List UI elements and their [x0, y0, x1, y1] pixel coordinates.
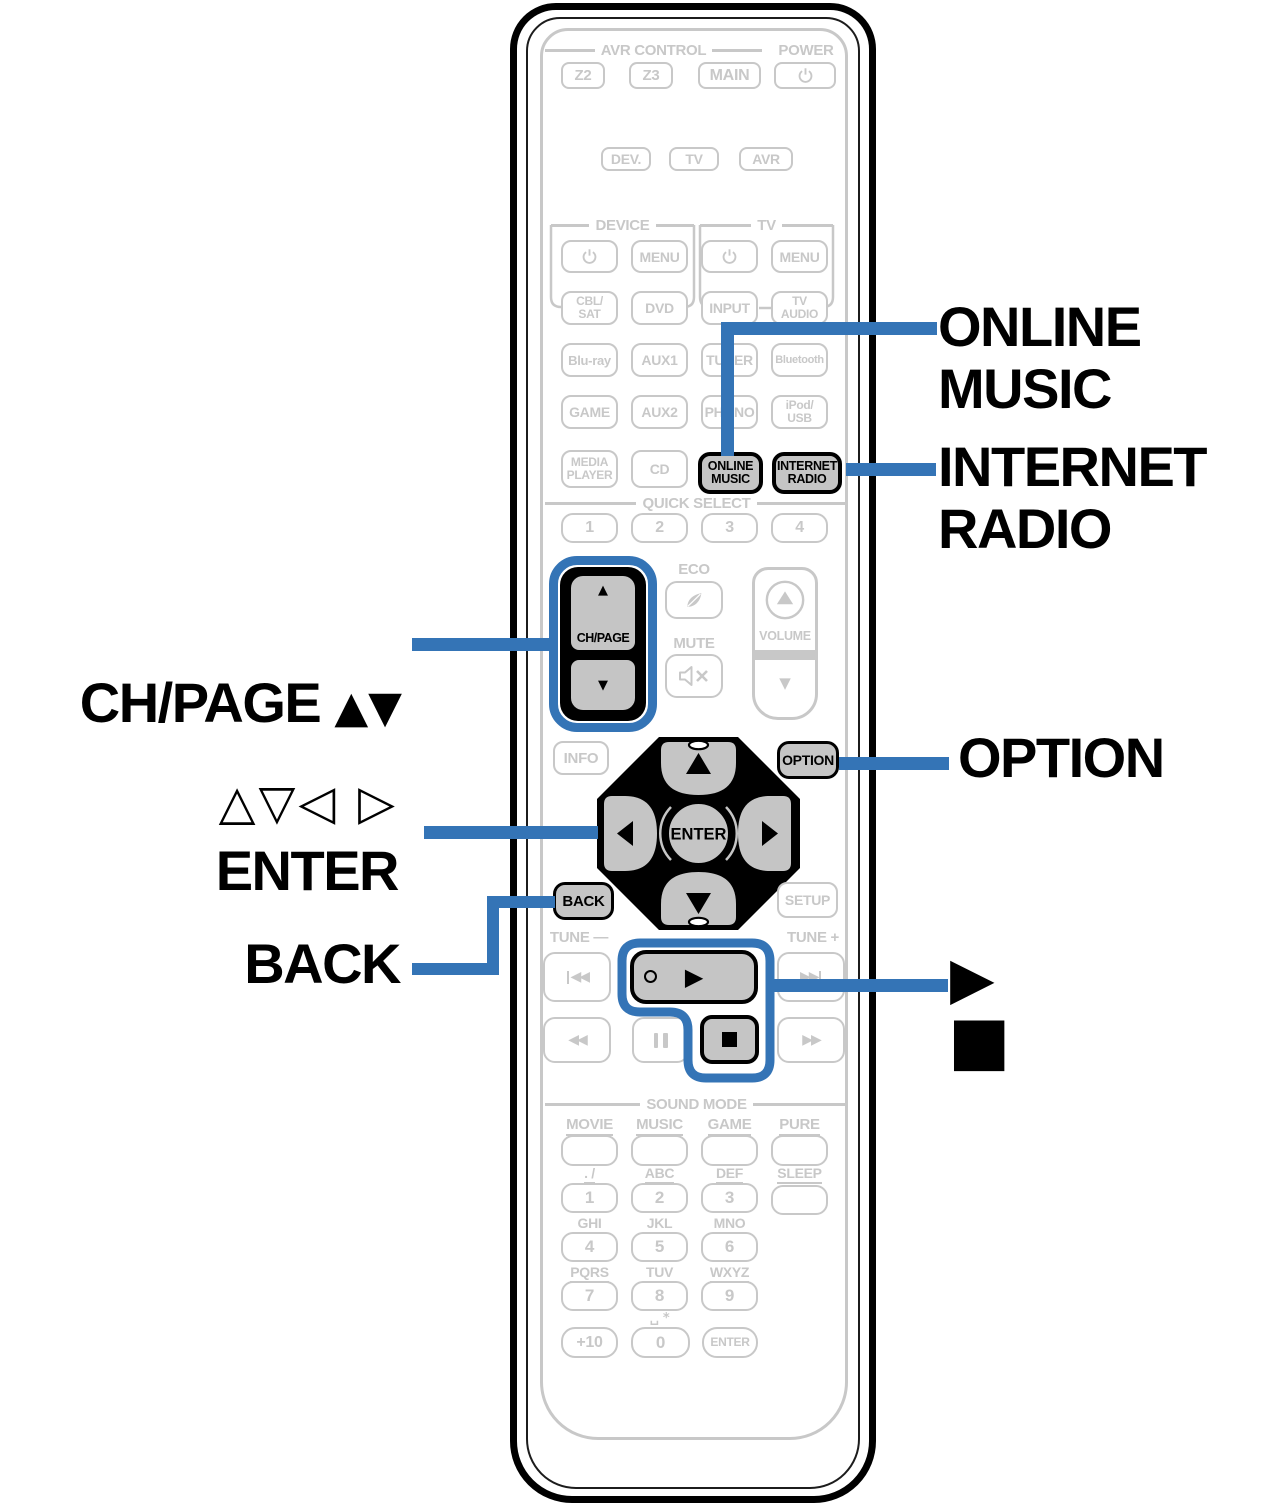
- rewind-button[interactable]: ◀◀: [543, 1017, 611, 1063]
- callout-line-internet-radio: [846, 463, 936, 476]
- callout-line-option: [839, 757, 949, 770]
- pad-bump-top: [689, 741, 708, 749]
- mno-label: MNO: [701, 1215, 758, 1231]
- volume-down-button[interactable]: ▼: [755, 674, 815, 692]
- online-music-button[interactable]: ONLINE MUSIC: [698, 452, 763, 494]
- callout-line-play-stop: [768, 979, 948, 992]
- power-header: POWER: [774, 42, 838, 59]
- dot-slash-label: . /: [561, 1165, 618, 1181]
- cursor-pad: ENTER: [595, 733, 805, 933]
- volume-label: VOLUME: [755, 629, 815, 643]
- mute-speaker-icon: [678, 665, 710, 687]
- ghi-label: GHI: [561, 1215, 618, 1231]
- media-player-button[interactable]: MEDIA PLAYER: [561, 450, 618, 488]
- skip-back-button[interactable]: ◀◀: [543, 952, 611, 1002]
- wxyz-label: WXYZ: [701, 1264, 758, 1280]
- avr-control-header: AVR CONTROL: [545, 42, 762, 59]
- music-sound-button[interactable]: [631, 1135, 688, 1166]
- enter-callout: ENTER: [0, 840, 398, 902]
- game-input-button[interactable]: GAME: [561, 395, 618, 429]
- sleep-label: SLEEP: [771, 1165, 828, 1181]
- ipod-usb-button[interactable]: iPod/ USB: [771, 395, 828, 429]
- main-zone-button[interactable]: MAIN: [698, 62, 761, 89]
- skip-bar: [567, 971, 570, 984]
- zone3-button[interactable]: Z3: [629, 62, 673, 89]
- eco-label: ECO: [663, 561, 725, 578]
- sound-mode-header: SOUND MODE: [545, 1096, 848, 1113]
- bluetooth-button[interactable]: Bluetooth: [771, 343, 828, 377]
- movie-sound-button[interactable]: [561, 1135, 618, 1166]
- power-icon: [581, 248, 598, 265]
- tv-audio-button[interactable]: TV AUDIO: [771, 291, 828, 325]
- number-enter-button[interactable]: ENTER: [702, 1327, 758, 1358]
- internet-radio-button[interactable]: INTERNET RADIO: [772, 452, 842, 494]
- def-label: DEF: [701, 1165, 758, 1181]
- dev-mode-button[interactable]: DEV.: [601, 147, 651, 171]
- eco-button[interactable]: [665, 581, 723, 619]
- tv-power-button[interactable]: [701, 240, 758, 273]
- leaf-icon: [682, 589, 706, 611]
- cursor-arrows-callout: △▽◁ ▷: [0, 772, 398, 834]
- cbl-sat-button[interactable]: CBL/ SAT: [561, 291, 618, 325]
- power-icon: [797, 67, 814, 84]
- input-button[interactable]: INPUT: [701, 291, 758, 325]
- digit-5-button[interactable]: 5: [631, 1232, 688, 1262]
- space-asterisk-label: ␣ *: [631, 1311, 688, 1326]
- setup-button[interactable]: SETUP: [777, 882, 838, 918]
- tv-menu-button[interactable]: MENU: [771, 240, 828, 273]
- pqrs-label: PQRS: [561, 1264, 618, 1280]
- skip-forward-button[interactable]: ▶▶: [777, 952, 845, 1002]
- cd-button[interactable]: CD: [631, 450, 688, 488]
- online-music-callout: ONLINE MUSIC: [938, 296, 1141, 420]
- up-arrow-icon: ▲: [598, 583, 608, 598]
- callout-line-online-music: [721, 322, 937, 335]
- mute-label: MUTE: [663, 635, 725, 652]
- fast-forward-button[interactable]: ▶▶: [777, 1017, 845, 1063]
- aux2-button[interactable]: AUX2: [631, 395, 688, 429]
- back-callout: BACK: [0, 933, 400, 995]
- aux1-button[interactable]: AUX1: [631, 343, 688, 377]
- callout-line-chpage: [412, 638, 552, 651]
- jkl-label: JKL: [631, 1215, 688, 1231]
- device-power-button[interactable]: [561, 240, 618, 273]
- quick-select-2-button[interactable]: 2: [631, 513, 688, 543]
- rewind-icon: ◀◀: [568, 1032, 586, 1048]
- internet-radio-callout: INTERNET RADIO: [938, 436, 1206, 560]
- digit-0-button[interactable]: 0: [631, 1327, 690, 1358]
- chpage-callout: CH/PAGE ▲▼: [0, 610, 402, 739]
- callout-line-online-music: [721, 324, 734, 456]
- callout-line-cursor: [424, 826, 598, 839]
- pure-sound-button[interactable]: [771, 1135, 828, 1166]
- back-button[interactable]: BACK: [553, 882, 614, 920]
- mute-button[interactable]: [665, 654, 723, 698]
- volume-divider: [754, 650, 816, 660]
- zone2-button[interactable]: Z2: [561, 62, 605, 89]
- avr-mode-button[interactable]: AVR: [739, 147, 793, 171]
- movie-label: MOVIE: [561, 1116, 618, 1133]
- digit-3-button[interactable]: 3: [701, 1183, 758, 1213]
- game-label: GAME: [701, 1116, 758, 1133]
- callout-line-back: [412, 963, 492, 975]
- quick-select-4-button[interactable]: 4: [771, 513, 828, 543]
- sleep-button[interactable]: [771, 1185, 828, 1215]
- bluray-button[interactable]: Blu-ray: [561, 343, 618, 377]
- chpage-label: CH/PAGE: [577, 631, 630, 645]
- abc-label: ABC: [631, 1165, 688, 1181]
- plus10-button[interactable]: +10: [561, 1327, 618, 1358]
- power-icon: [721, 248, 738, 265]
- digit-2-button[interactable]: 2: [631, 1183, 688, 1213]
- quick-select-header: QUICK SELECT: [545, 495, 848, 512]
- game-sound-button[interactable]: [701, 1135, 758, 1166]
- down-arrow-icon: ▼: [598, 678, 608, 693]
- digit-8-button[interactable]: 8: [631, 1281, 688, 1311]
- volume-block: VOLUME ▼: [752, 567, 818, 720]
- play-stop-highlight: [613, 934, 779, 1087]
- stop-callout: ■: [948, 1006, 1009, 1076]
- remote-diagram: AVR CONTROL POWER Z2 Z3 MAIN DEV. TV AVR…: [0, 0, 1280, 1510]
- digit-9-button[interactable]: 9: [701, 1281, 758, 1311]
- pure-label: PURE: [771, 1116, 828, 1133]
- channel-page-down-button[interactable]: ▼: [571, 660, 635, 710]
- dvd-button[interactable]: DVD: [631, 291, 688, 325]
- tuv-label: TUV: [631, 1264, 688, 1280]
- tune-down-label: TUNE —: [543, 929, 615, 946]
- digit-6-button[interactable]: 6: [701, 1232, 758, 1262]
- tune-up-label: TUNE +: [777, 929, 849, 946]
- volume-up-button[interactable]: [763, 578, 807, 622]
- option-callout: OPTION: [958, 727, 1164, 789]
- digit-4-button[interactable]: 4: [561, 1232, 618, 1262]
- enter-button-label: ENTER: [671, 826, 727, 844]
- device-menu-button[interactable]: MENU: [631, 240, 688, 273]
- chpage-arrows: ▲▼: [334, 682, 402, 733]
- channel-page-up-button[interactable]: ▲ CH/PAGE: [571, 576, 635, 650]
- digit-7-button[interactable]: 7: [561, 1281, 618, 1311]
- volume-up-icon: [763, 578, 807, 622]
- fast-forward-icon: ▶▶: [802, 1032, 820, 1048]
- quick-select-1-button[interactable]: 1: [561, 513, 618, 543]
- pad-bump-bottom: [689, 918, 708, 926]
- quick-select-3-button[interactable]: 3: [701, 513, 758, 543]
- skip-back-icon: ◀◀: [570, 969, 588, 985]
- digit-1-button[interactable]: 1: [561, 1183, 618, 1213]
- power-button[interactable]: [774, 62, 836, 89]
- tv-mode-button[interactable]: TV: [669, 147, 719, 171]
- music-label: MUSIC: [631, 1116, 688, 1133]
